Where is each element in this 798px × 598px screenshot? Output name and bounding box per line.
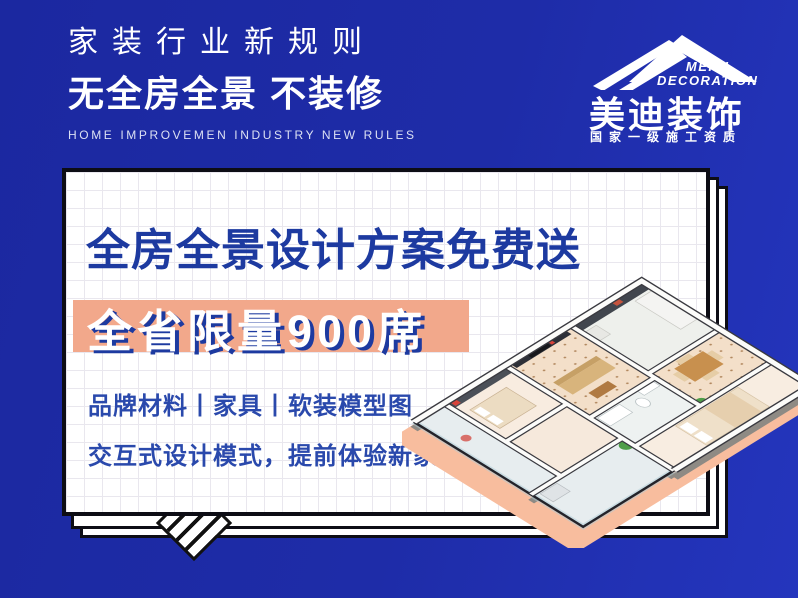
header-slogan: 无全房全景 不装修	[68, 76, 417, 112]
brand-name-en-line1: MEIDI	[657, 60, 758, 74]
header-slogan-en: HOME IMPROVEMEN INDUSTRY NEW RULES	[68, 128, 417, 142]
header-rule-title: 家装行业新规则	[68, 28, 417, 58]
offer-detail-1: 品牌材料丨家具丨软装模型图	[88, 386, 413, 421]
promo-poster: { "header": { "line1": "家装行业新规则", "line2…	[0, 0, 798, 598]
offer-detail-2: 交互式设计模式，提前体验新家	[88, 436, 438, 471]
floorplan-3d-image	[402, 236, 798, 548]
header-block: 家装行业新规则 无全房全景 不装修 HOME IMPROVEMEN INDUST…	[68, 28, 417, 142]
brand-qualification: 国家一级施工资质	[590, 128, 742, 145]
quota-banner-text: 全省限量900席	[87, 295, 427, 360]
brand-logo: MEIDI DECORATION 美迪装饰 国家一级施工资质	[585, 20, 763, 148]
brand-name-en: MEIDI DECORATION	[657, 60, 758, 88]
